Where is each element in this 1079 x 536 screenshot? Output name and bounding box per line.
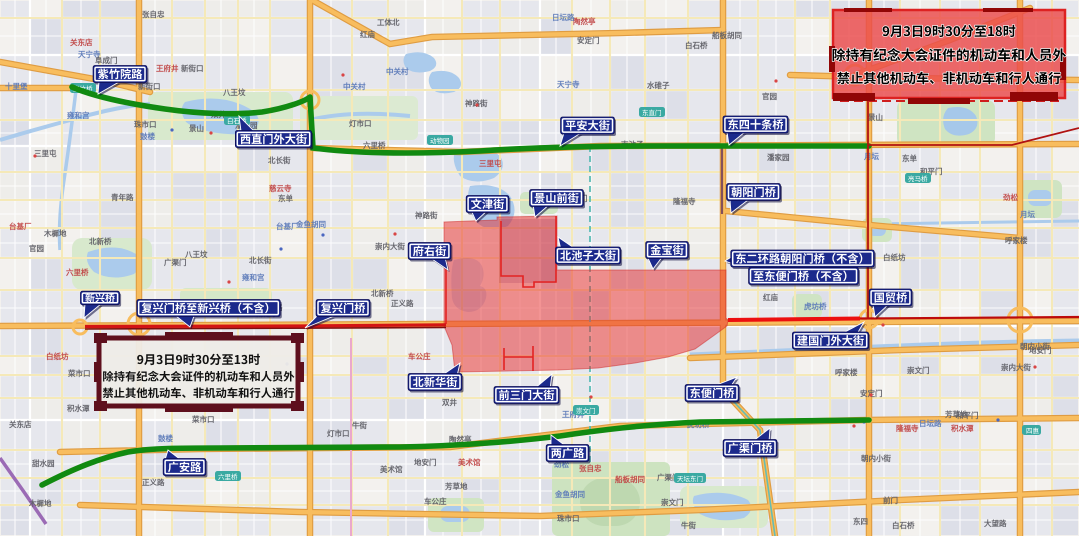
svg-text:雍和宫: 雍和宫 bbox=[242, 272, 265, 282]
svg-text:天坛东门: 天坛东门 bbox=[677, 474, 703, 483]
svg-text:积水潭: 积水潭 bbox=[950, 423, 974, 433]
svg-text:新街口: 新街口 bbox=[181, 63, 204, 73]
svg-text:正义路: 正义路 bbox=[391, 298, 414, 308]
svg-text:崇内大街: 崇内大街 bbox=[375, 241, 405, 251]
svg-text:台基厂: 台基厂 bbox=[276, 221, 299, 231]
svg-text:呼家楼: 呼家楼 bbox=[835, 367, 858, 377]
svg-text:六里桥: 六里桥 bbox=[363, 140, 386, 150]
svg-text:东单: 东单 bbox=[278, 193, 293, 203]
svg-text:牛街: 牛街 bbox=[352, 420, 367, 430]
svg-text:关东店: 关东店 bbox=[9, 419, 32, 429]
svg-text:船板胡同: 船板胡同 bbox=[615, 474, 645, 484]
svg-text:崇内大街: 崇内大街 bbox=[1001, 362, 1031, 372]
svg-text:天宁寺: 天宁寺 bbox=[557, 79, 580, 89]
svg-text:工体北: 工体北 bbox=[377, 17, 400, 27]
svg-text:金鱼胡同: 金鱼胡同 bbox=[554, 489, 585, 499]
svg-text:积水潭: 积水潭 bbox=[66, 403, 90, 413]
svg-text:木樨地: 木樨地 bbox=[43, 228, 67, 238]
svg-text:隆福寺: 隆福寺 bbox=[896, 423, 919, 433]
svg-text:劲松: 劲松 bbox=[1003, 192, 1018, 202]
svg-text:崇文门: 崇文门 bbox=[907, 365, 930, 375]
svg-text:张自忠: 张自忠 bbox=[142, 9, 165, 19]
svg-text:红庙: 红庙 bbox=[360, 29, 375, 39]
svg-text:四惠: 四惠 bbox=[1026, 426, 1040, 435]
svg-text:崇文门: 崇文门 bbox=[576, 406, 596, 415]
svg-text:甜水园: 甜水园 bbox=[32, 458, 55, 468]
svg-text:珠市口: 珠市口 bbox=[134, 119, 157, 129]
svg-text:张自忠: 张自忠 bbox=[579, 463, 602, 473]
svg-text:菜市口: 菜市口 bbox=[67, 368, 91, 378]
svg-text:白石桥: 白石桥 bbox=[685, 40, 708, 50]
svg-text:日坛路: 日坛路 bbox=[552, 12, 575, 22]
svg-text:六里桥: 六里桥 bbox=[66, 267, 89, 277]
svg-text:北长街: 北长街 bbox=[268, 155, 291, 165]
svg-text:大望路: 大望路 bbox=[984, 518, 1007, 528]
svg-text:崇文门: 崇文门 bbox=[661, 497, 684, 507]
svg-text:北新桥: 北新桥 bbox=[371, 288, 394, 298]
svg-text:水碓子: 水碓子 bbox=[647, 80, 670, 90]
svg-text:官园: 官园 bbox=[762, 91, 777, 101]
svg-text:鼓楼: 鼓楼 bbox=[140, 131, 155, 141]
svg-text:朝内小街: 朝内小街 bbox=[861, 453, 891, 463]
svg-text:珠市口: 珠市口 bbox=[557, 513, 580, 523]
svg-text:亮马桥: 亮马桥 bbox=[908, 174, 928, 183]
svg-text:王府井: 王府井 bbox=[156, 63, 179, 73]
svg-text:呼家楼: 呼家楼 bbox=[1005, 235, 1028, 245]
svg-text:美术馆: 美术馆 bbox=[380, 464, 403, 474]
svg-text:隆福寺: 隆福寺 bbox=[673, 196, 696, 206]
svg-text:台基厂: 台基厂 bbox=[9, 221, 32, 231]
svg-text:六里桥: 六里桥 bbox=[218, 472, 238, 481]
svg-text:白纸坊: 白纸坊 bbox=[46, 351, 69, 361]
svg-text:中关村: 中关村 bbox=[386, 66, 409, 76]
svg-text:阜成门: 阜成门 bbox=[95, 55, 118, 65]
svg-text:八王坟: 八王坟 bbox=[222, 87, 246, 97]
svg-text:三里屯: 三里屯 bbox=[34, 148, 57, 158]
svg-text:三里屯: 三里屯 bbox=[479, 158, 502, 168]
svg-text:灯市口: 灯市口 bbox=[327, 428, 350, 438]
svg-text:慈云寺: 慈云寺 bbox=[269, 183, 292, 193]
svg-text:陶然亭: 陶然亭 bbox=[573, 16, 596, 26]
svg-text:安定门: 安定门 bbox=[577, 35, 600, 45]
svg-text:景山: 景山 bbox=[868, 112, 883, 122]
svg-text:前门: 前门 bbox=[883, 495, 898, 505]
svg-text:广渠门: 广渠门 bbox=[164, 257, 187, 267]
svg-text:月坛: 月坛 bbox=[863, 151, 879, 161]
svg-text:芳草地: 芳草地 bbox=[445, 481, 468, 491]
svg-text:车公庄: 车公庄 bbox=[424, 496, 447, 506]
svg-text:日坛路: 日坛路 bbox=[919, 418, 942, 428]
svg-text:关东店: 关东店 bbox=[70, 37, 93, 47]
svg-text:朝内小街: 朝内小街 bbox=[1020, 341, 1050, 351]
svg-text:东四: 东四 bbox=[853, 516, 868, 526]
svg-text:雍和宫: 雍和宫 bbox=[67, 110, 90, 120]
svg-text:白石桥: 白石桥 bbox=[892, 520, 915, 530]
svg-text:鼓楼: 鼓楼 bbox=[158, 433, 173, 443]
svg-text:和平门: 和平门 bbox=[956, 410, 979, 420]
svg-text:美术馆: 美术馆 bbox=[458, 457, 481, 467]
svg-text:地安门: 地安门 bbox=[414, 457, 437, 467]
svg-text:白纸坊: 白纸坊 bbox=[883, 252, 906, 262]
svg-text:牛街: 牛街 bbox=[681, 520, 696, 530]
svg-text:车公庄: 车公庄 bbox=[408, 351, 431, 361]
svg-text:金鱼胡同: 金鱼胡同 bbox=[295, 219, 326, 229]
svg-text:灯市口: 灯市口 bbox=[349, 118, 372, 128]
svg-text:红庙: 红庙 bbox=[763, 292, 778, 302]
svg-text:动物园: 动物园 bbox=[430, 136, 450, 145]
svg-text:月坛: 月坛 bbox=[1019, 209, 1036, 219]
svg-text:双井: 双井 bbox=[442, 397, 457, 407]
svg-text:神路街: 神路街 bbox=[415, 210, 438, 220]
svg-text:东单: 东单 bbox=[902, 153, 917, 163]
svg-text:十里堡: 十里堡 bbox=[5, 81, 28, 91]
svg-text:正义路: 正义路 bbox=[142, 477, 165, 487]
svg-text:青年路: 青年路 bbox=[111, 192, 134, 202]
svg-text:东直门: 东直门 bbox=[642, 108, 662, 117]
svg-text:潘家园: 潘家园 bbox=[767, 152, 790, 162]
svg-text:北长街: 北长街 bbox=[249, 255, 272, 265]
svg-text:八王坟: 八王坟 bbox=[184, 249, 208, 259]
svg-text:北新桥: 北新桥 bbox=[89, 236, 112, 246]
svg-text:船板胡同: 船板胡同 bbox=[712, 30, 742, 40]
svg-text:景山: 景山 bbox=[189, 123, 204, 133]
svg-text:中关村: 中关村 bbox=[343, 81, 366, 91]
svg-text:官园: 官园 bbox=[29, 243, 44, 253]
svg-text:菜市口: 菜市口 bbox=[191, 414, 215, 424]
svg-text:木樨地: 木樨地 bbox=[28, 498, 52, 508]
svg-text:虎坊桥: 虎坊桥 bbox=[804, 301, 827, 311]
